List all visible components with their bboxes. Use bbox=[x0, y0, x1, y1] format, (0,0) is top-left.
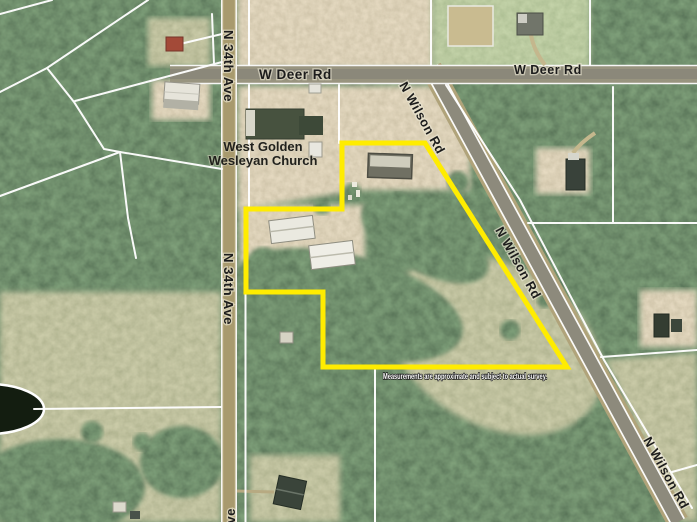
road-label-n-34th-ave-1: N 34th Ave bbox=[221, 30, 236, 102]
church-label-line1: West Golden bbox=[223, 139, 302, 154]
building-wilson-house bbox=[566, 153, 585, 190]
road-label-n-34th-ave-2: N 34th Ave bbox=[221, 253, 236, 325]
road-w-deer-rd bbox=[170, 65, 697, 84]
aerial-map[interactable]: W Deer Rd W Deer Rd N 34th Ave N 34th Av… bbox=[0, 0, 697, 522]
poi-labels: West Golden Wesleyan Church bbox=[209, 139, 318, 168]
road-label-w-deer-rd-2: W Deer Rd bbox=[514, 63, 582, 77]
building-top-right-house bbox=[517, 13, 543, 35]
building-barn-b bbox=[269, 215, 315, 243]
building-barn-a bbox=[368, 153, 413, 179]
building-red-house bbox=[166, 37, 183, 51]
church-label-line2: Wesleyan Church bbox=[209, 153, 318, 168]
field-top-middle bbox=[237, 0, 433, 68]
building-bottom-house bbox=[273, 475, 306, 509]
building-barn-c bbox=[309, 240, 356, 269]
road-label-w-deer-rd-1: W Deer Rd bbox=[259, 67, 332, 82]
building-roadside-shed bbox=[309, 84, 321, 93]
disclaimer-text: Measurements are approximate and subject… bbox=[383, 372, 547, 381]
building-west-barn bbox=[163, 82, 200, 110]
map-canvas[interactable]: W Deer Rd W Deer Rd N 34th Ave N 34th Av… bbox=[0, 0, 697, 522]
road-label-n-34th-ave-3-partial: N 34th Ave bbox=[223, 508, 238, 522]
garden-plot bbox=[448, 6, 493, 46]
building-mid-house bbox=[280, 332, 293, 343]
